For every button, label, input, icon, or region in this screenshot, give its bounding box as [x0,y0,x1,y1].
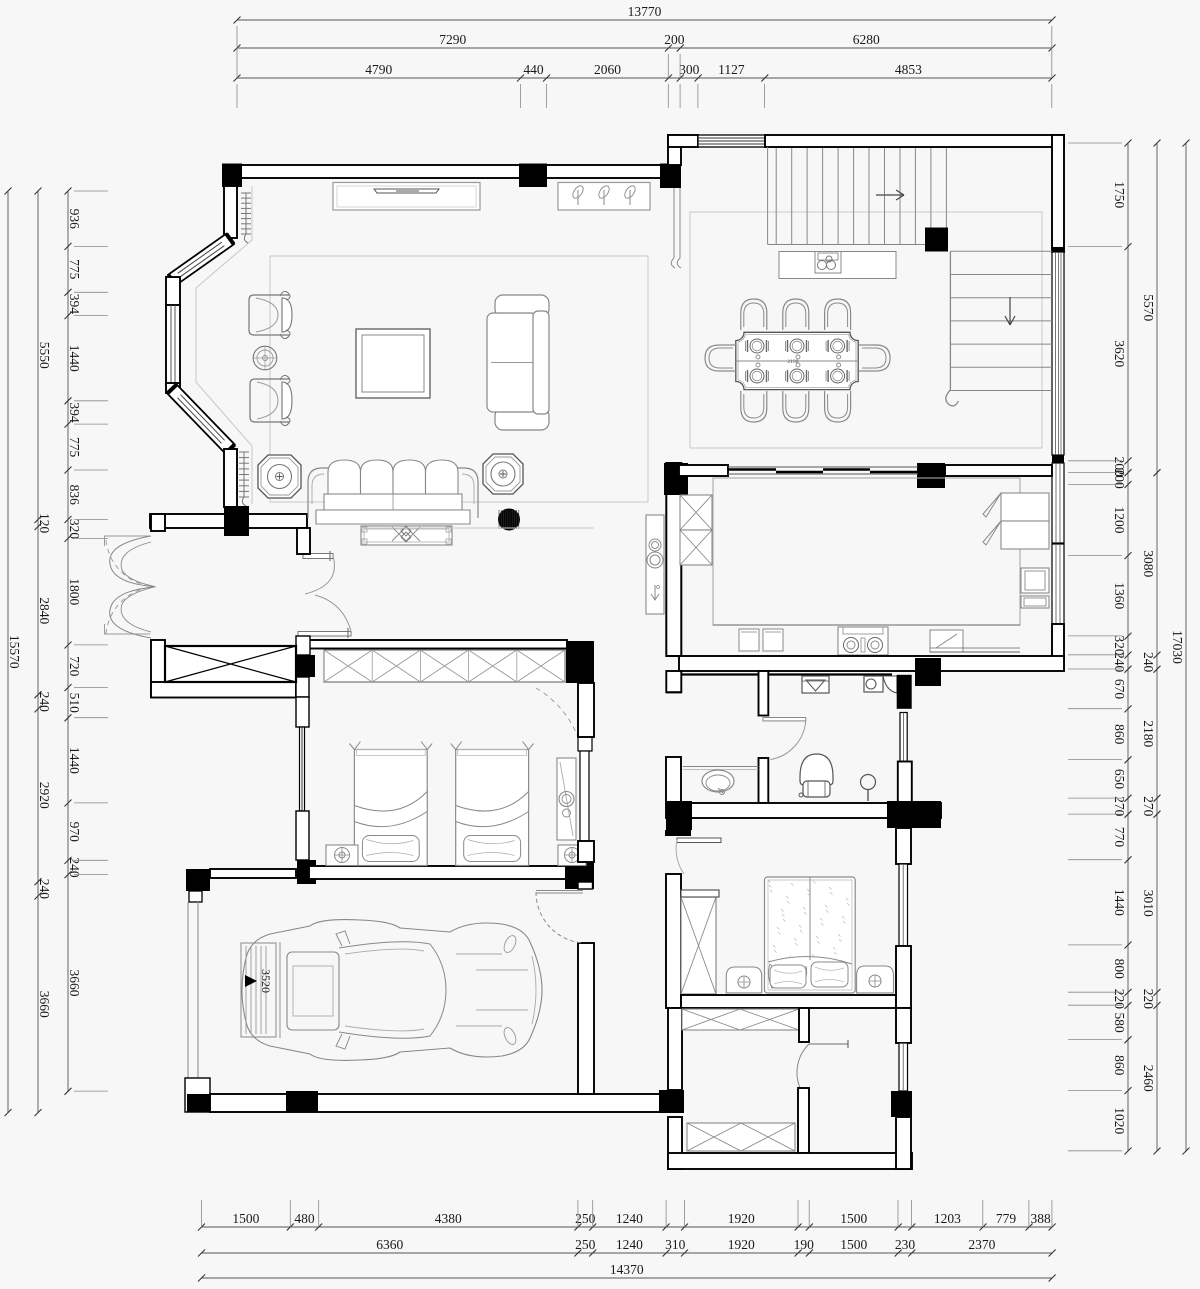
svg-text:836: 836 [67,485,82,506]
svg-text:1240: 1240 [616,1237,643,1252]
svg-text:240: 240 [37,692,52,713]
svg-text:6360: 6360 [376,1237,403,1252]
svg-text:15570: 15570 [7,635,22,669]
svg-text:2180: 2180 [1141,720,1156,747]
svg-text:770: 770 [1112,827,1127,848]
svg-text:650: 650 [1112,769,1127,790]
svg-text:775: 775 [67,259,82,280]
svg-text:220: 220 [1141,989,1156,1010]
svg-text:5550: 5550 [37,342,52,369]
svg-text:1020: 1020 [1112,1107,1127,1134]
svg-text:779: 779 [996,1211,1017,1226]
svg-text:3620: 3620 [1112,340,1127,367]
svg-text:2840: 2840 [37,597,52,624]
svg-text:3010: 3010 [1141,890,1156,917]
svg-text:300: 300 [679,62,700,77]
svg-text:720: 720 [67,656,82,677]
svg-text:1920: 1920 [728,1237,755,1252]
svg-text:1440: 1440 [67,747,82,774]
svg-text:200: 200 [1112,468,1127,489]
svg-text:3520: 3520 [259,969,273,993]
svg-text:2060: 2060 [594,62,621,77]
svg-text:2190: 2190 [788,359,799,365]
svg-text:4790: 4790 [365,62,392,77]
svg-text:1440: 1440 [67,345,82,372]
svg-text:1750: 1750 [1112,181,1127,208]
svg-text:1500: 1500 [840,1211,867,1226]
svg-text:1440: 1440 [1112,889,1127,916]
svg-text:320: 320 [67,519,82,540]
svg-text:3080: 3080 [1141,550,1156,577]
svg-text:4853: 4853 [895,62,922,77]
svg-text:580: 580 [1112,1012,1127,1033]
svg-text:775: 775 [67,437,82,458]
svg-text:860: 860 [1112,724,1127,745]
svg-text:13770: 13770 [628,4,662,19]
svg-text:394: 394 [67,294,82,315]
svg-text:5570: 5570 [1141,294,1156,321]
svg-text:3660: 3660 [37,991,52,1018]
svg-text:4380: 4380 [435,1211,462,1226]
svg-text:1500: 1500 [840,1237,867,1252]
svg-text:270: 270 [1112,796,1127,817]
svg-text:2460: 2460 [1141,1065,1156,1092]
svg-text:270: 270 [1141,796,1156,817]
svg-text:2920: 2920 [37,782,52,809]
svg-text:1203: 1203 [934,1211,961,1226]
svg-text:860: 860 [1112,1055,1127,1076]
svg-text:800: 800 [1112,959,1127,980]
svg-text:1360: 1360 [1112,582,1127,609]
svg-text:120: 120 [37,513,52,534]
svg-text:1920: 1920 [728,1211,755,1226]
svg-text:2370: 2370 [968,1237,995,1252]
svg-text:310: 310 [665,1237,686,1252]
svg-text:200: 200 [664,32,685,47]
svg-text:670: 670 [1112,679,1127,700]
svg-text:936: 936 [67,209,82,230]
svg-text:240: 240 [37,879,52,900]
svg-text:388: 388 [1030,1211,1051,1226]
svg-text:230: 230 [895,1237,916,1252]
svg-text:1800: 1800 [67,578,82,605]
svg-text:480: 480 [294,1211,315,1226]
svg-text:190: 190 [794,1237,815,1252]
svg-text:394: 394 [67,402,82,423]
svg-text:250: 250 [575,1237,596,1252]
svg-text:970: 970 [67,822,82,843]
svg-text:1200: 1200 [1112,507,1127,534]
svg-text:14370: 14370 [610,1262,644,1277]
svg-text:17030: 17030 [1170,630,1185,664]
svg-text:3660: 3660 [67,970,82,997]
svg-text:6280: 6280 [853,32,880,47]
svg-text:7290: 7290 [439,32,466,47]
svg-text:1500: 1500 [232,1211,259,1226]
svg-text:440: 440 [523,62,544,77]
svg-text:1240: 1240 [616,1211,643,1226]
svg-text:240: 240 [1141,652,1156,673]
svg-text:510: 510 [67,693,82,714]
svg-text:1127: 1127 [718,62,745,77]
